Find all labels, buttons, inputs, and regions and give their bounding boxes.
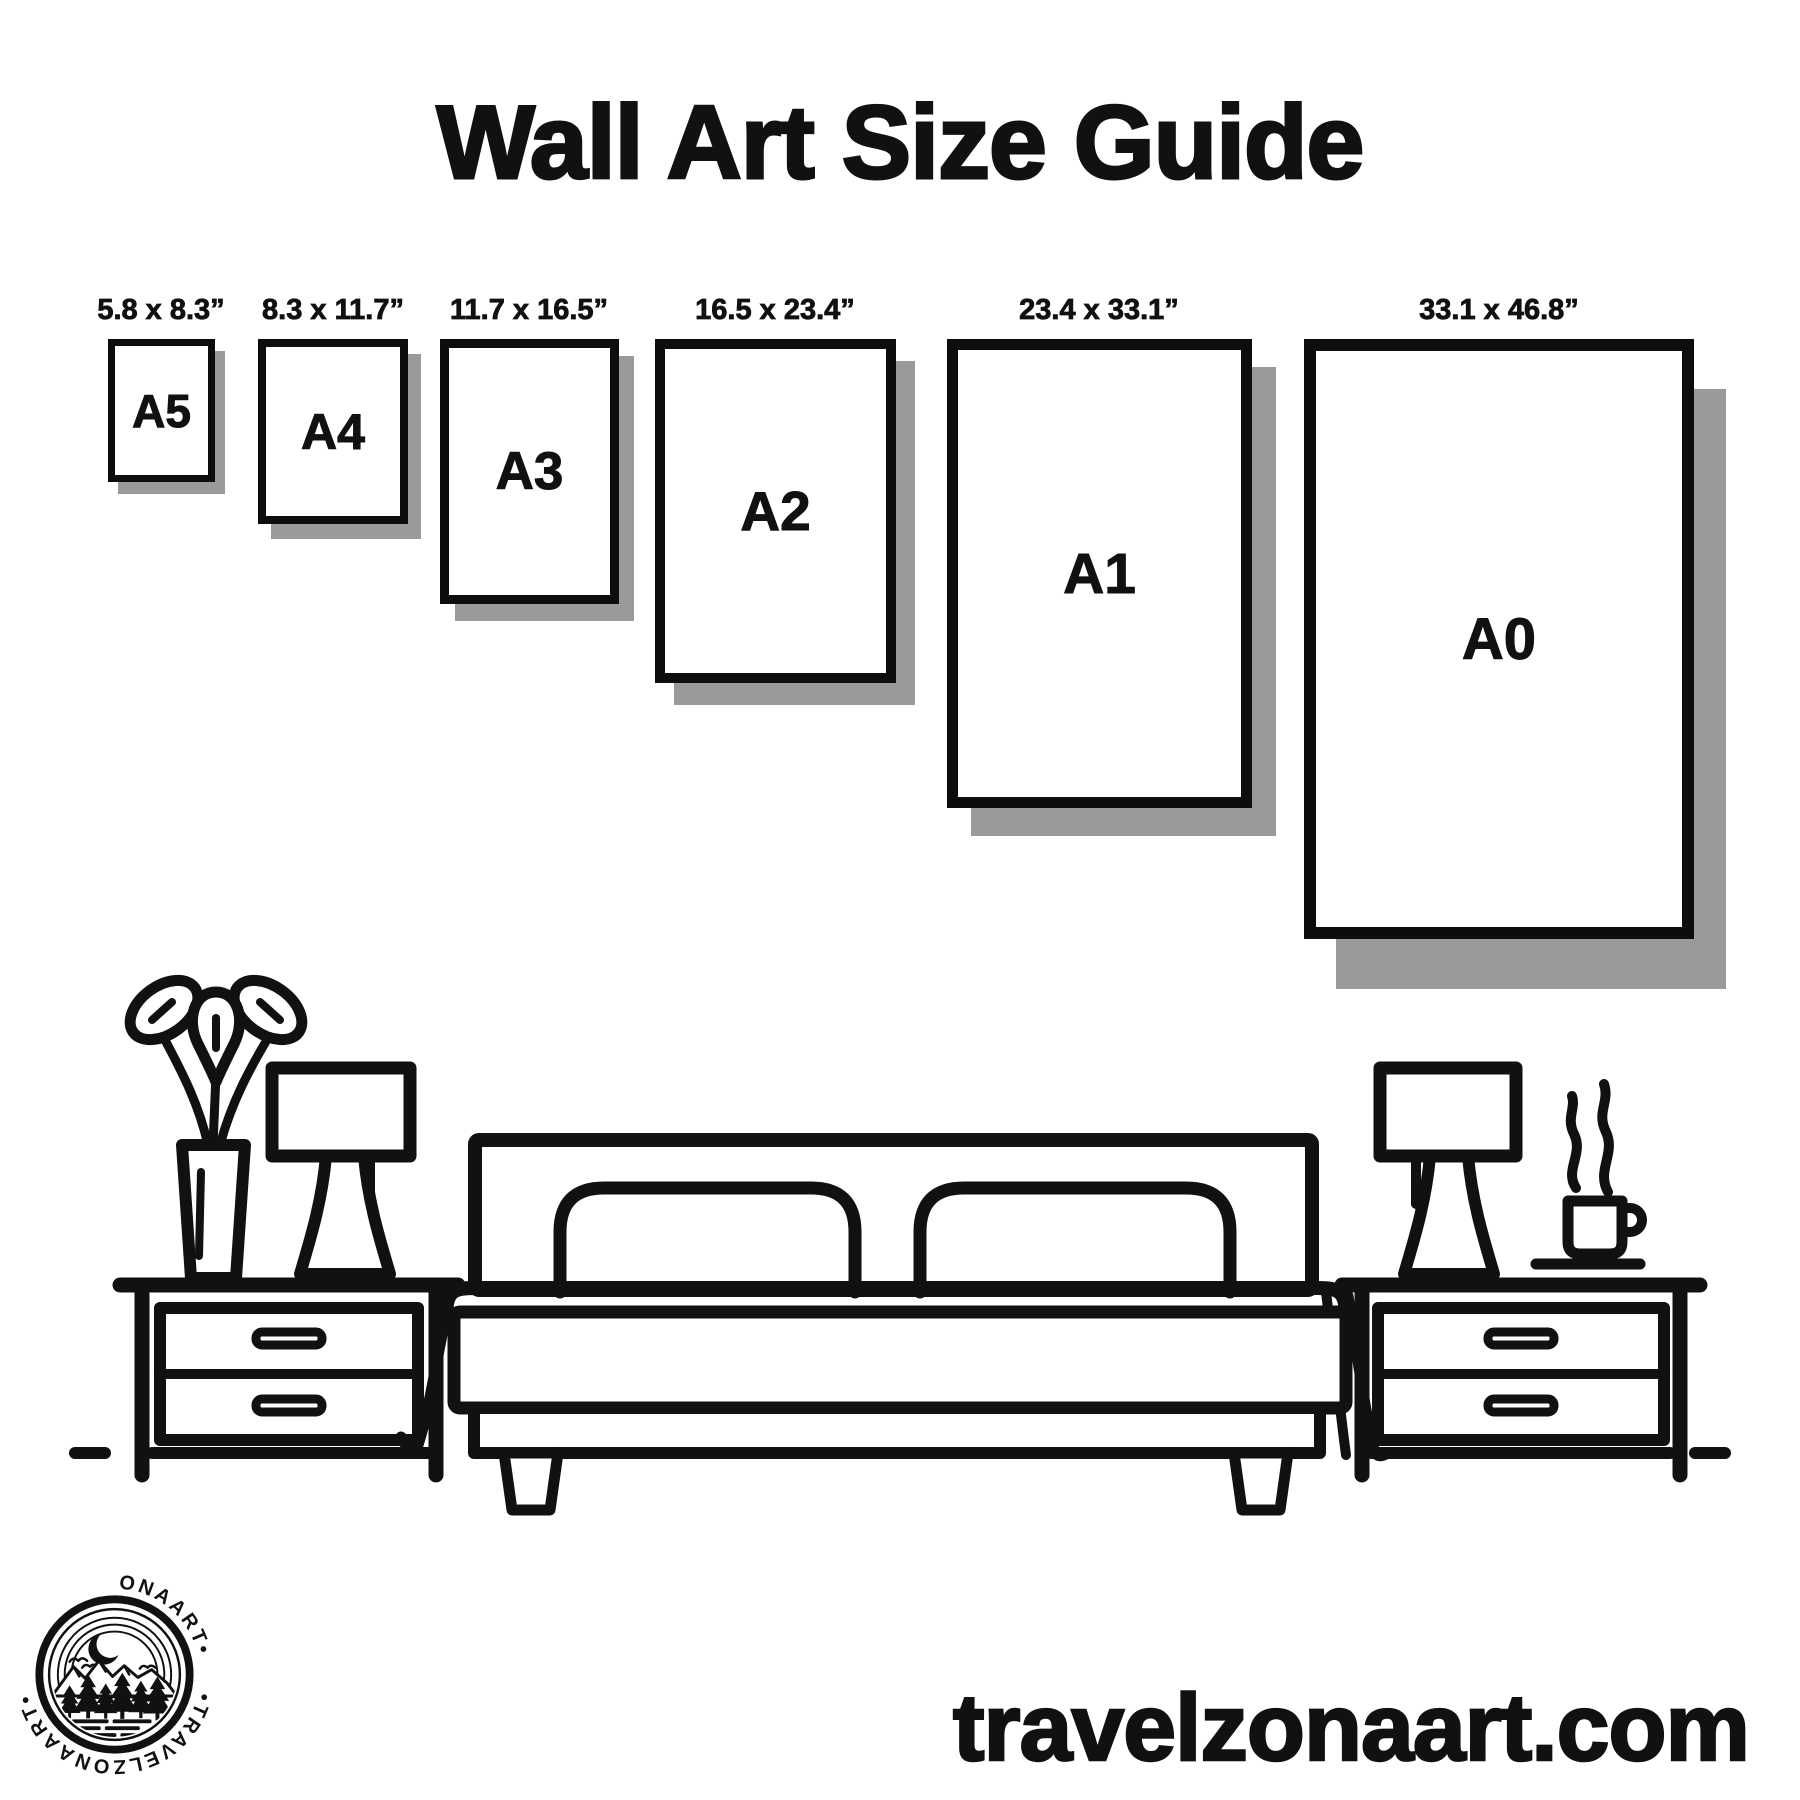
frame-letter-a4: A4: [301, 403, 365, 461]
water-lines-icon: [74, 1721, 150, 1741]
bedroom-scene: [60, 940, 1740, 1520]
frame-a3: A3: [440, 339, 619, 604]
frame-a1: A1: [947, 339, 1252, 808]
size-label-a0: 33.1 x 46.8”: [1419, 294, 1579, 327]
page-title: Wall Art Size Guide: [0, 84, 1800, 203]
frame-letter-a1: A1: [1063, 541, 1136, 607]
nightstand-icon: [1342, 1285, 1700, 1475]
frame-a5: A5: [108, 339, 215, 482]
size-label-a3: 11.7 x 16.5”: [450, 294, 608, 327]
brand-logo: •TRAVELZONAART• •TRAVELZONAART•: [12, 1572, 217, 1777]
size-label-a1: 23.4 x 33.1”: [1019, 294, 1179, 327]
frame-a2: A2: [655, 339, 896, 683]
frame-letter-a0: A0: [1462, 606, 1536, 673]
coffee-cup-icon: [1536, 1084, 1642, 1264]
frame-a4: A4: [258, 339, 408, 524]
table-lamp-icon: [1380, 1068, 1516, 1274]
size-label-a5: 5.8 x 8.3”: [97, 294, 224, 327]
table-lamp-icon: [272, 1068, 410, 1274]
website-url: travelzonaart.com: [953, 1674, 1749, 1783]
frame-letter-a2: A2: [740, 479, 810, 543]
size-label-a2: 16.5 x 23.4”: [695, 294, 855, 327]
frame-letter-a3: A3: [496, 441, 564, 502]
frame-letter-a5: A5: [132, 384, 191, 438]
steam-icon: [1571, 1084, 1609, 1192]
frame-a0: A0: [1304, 339, 1694, 939]
moon-icon: [88, 1634, 118, 1665]
bed-icon: [401, 1140, 1386, 1510]
size-label-a4: 8.3 x 11.7”: [262, 294, 404, 327]
